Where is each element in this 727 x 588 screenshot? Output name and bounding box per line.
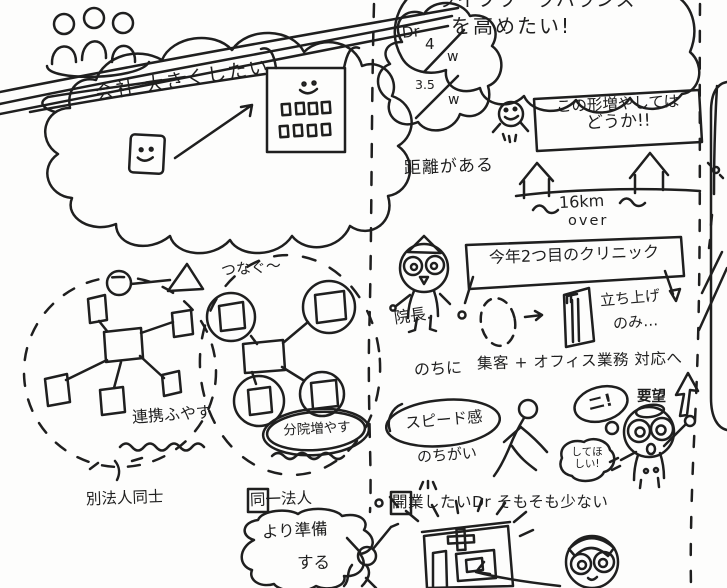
growth-arrow-icon [175, 105, 252, 158]
request-bubble-text: してほ しい! [564, 447, 610, 471]
big-building-icon [261, 47, 359, 152]
request-bubble-line2: しい! [564, 459, 610, 471]
suggestion-box-text: この形増やしては どうか!! [536, 92, 699, 135]
distance-houses-sketch [516, 153, 700, 213]
bottom-note-text: 開業したいDr そもそも少ない [392, 494, 608, 511]
dr-unit1: w [447, 50, 458, 66]
left-network-sketch [24, 264, 216, 480]
reaching-figure-icon [344, 524, 398, 588]
right-network-sub: 同一法人 [250, 490, 313, 510]
wlb-goal-line1: ライフワークバランス [437, 0, 636, 11]
right-edge-marks-sketch [699, 82, 727, 430]
whiteboard-sketch: 会社 大きくしたい ライフワークバランス を高めたい! Dr 4 w 3.5 w… [0, 0, 727, 588]
happy-person-icon [566, 536, 618, 588]
prep-line1: より準備 [262, 520, 329, 542]
distance-over: over [568, 213, 608, 229]
dr-label: Dr [401, 23, 420, 42]
into-window-arrow-icon [476, 562, 560, 586]
happy-figure-icon [493, 102, 528, 142]
walking-figure-icon [494, 400, 547, 476]
launch-flow-sketch [477, 288, 594, 349]
prep-line2: する [297, 554, 330, 572]
center-divider-line [369, 4, 374, 512]
request-bubble-line1: してほ [564, 447, 610, 459]
flow-arrow-icon [525, 311, 542, 320]
distance-label: 距離がある [404, 156, 495, 178]
dr-value2: 3.5 [415, 78, 435, 92]
right-network-sketch [193, 249, 388, 481]
later-prefix: のちに [414, 359, 463, 379]
wlb-goal-line2: を高めたい! [451, 15, 571, 37]
distance-value: 16km [559, 192, 605, 212]
dr-unit2: w [448, 93, 459, 109]
left-network-sub: 別法人同士 [86, 489, 164, 509]
request-label: 要望 [637, 389, 666, 405]
dr-value1: 4 [425, 36, 435, 53]
